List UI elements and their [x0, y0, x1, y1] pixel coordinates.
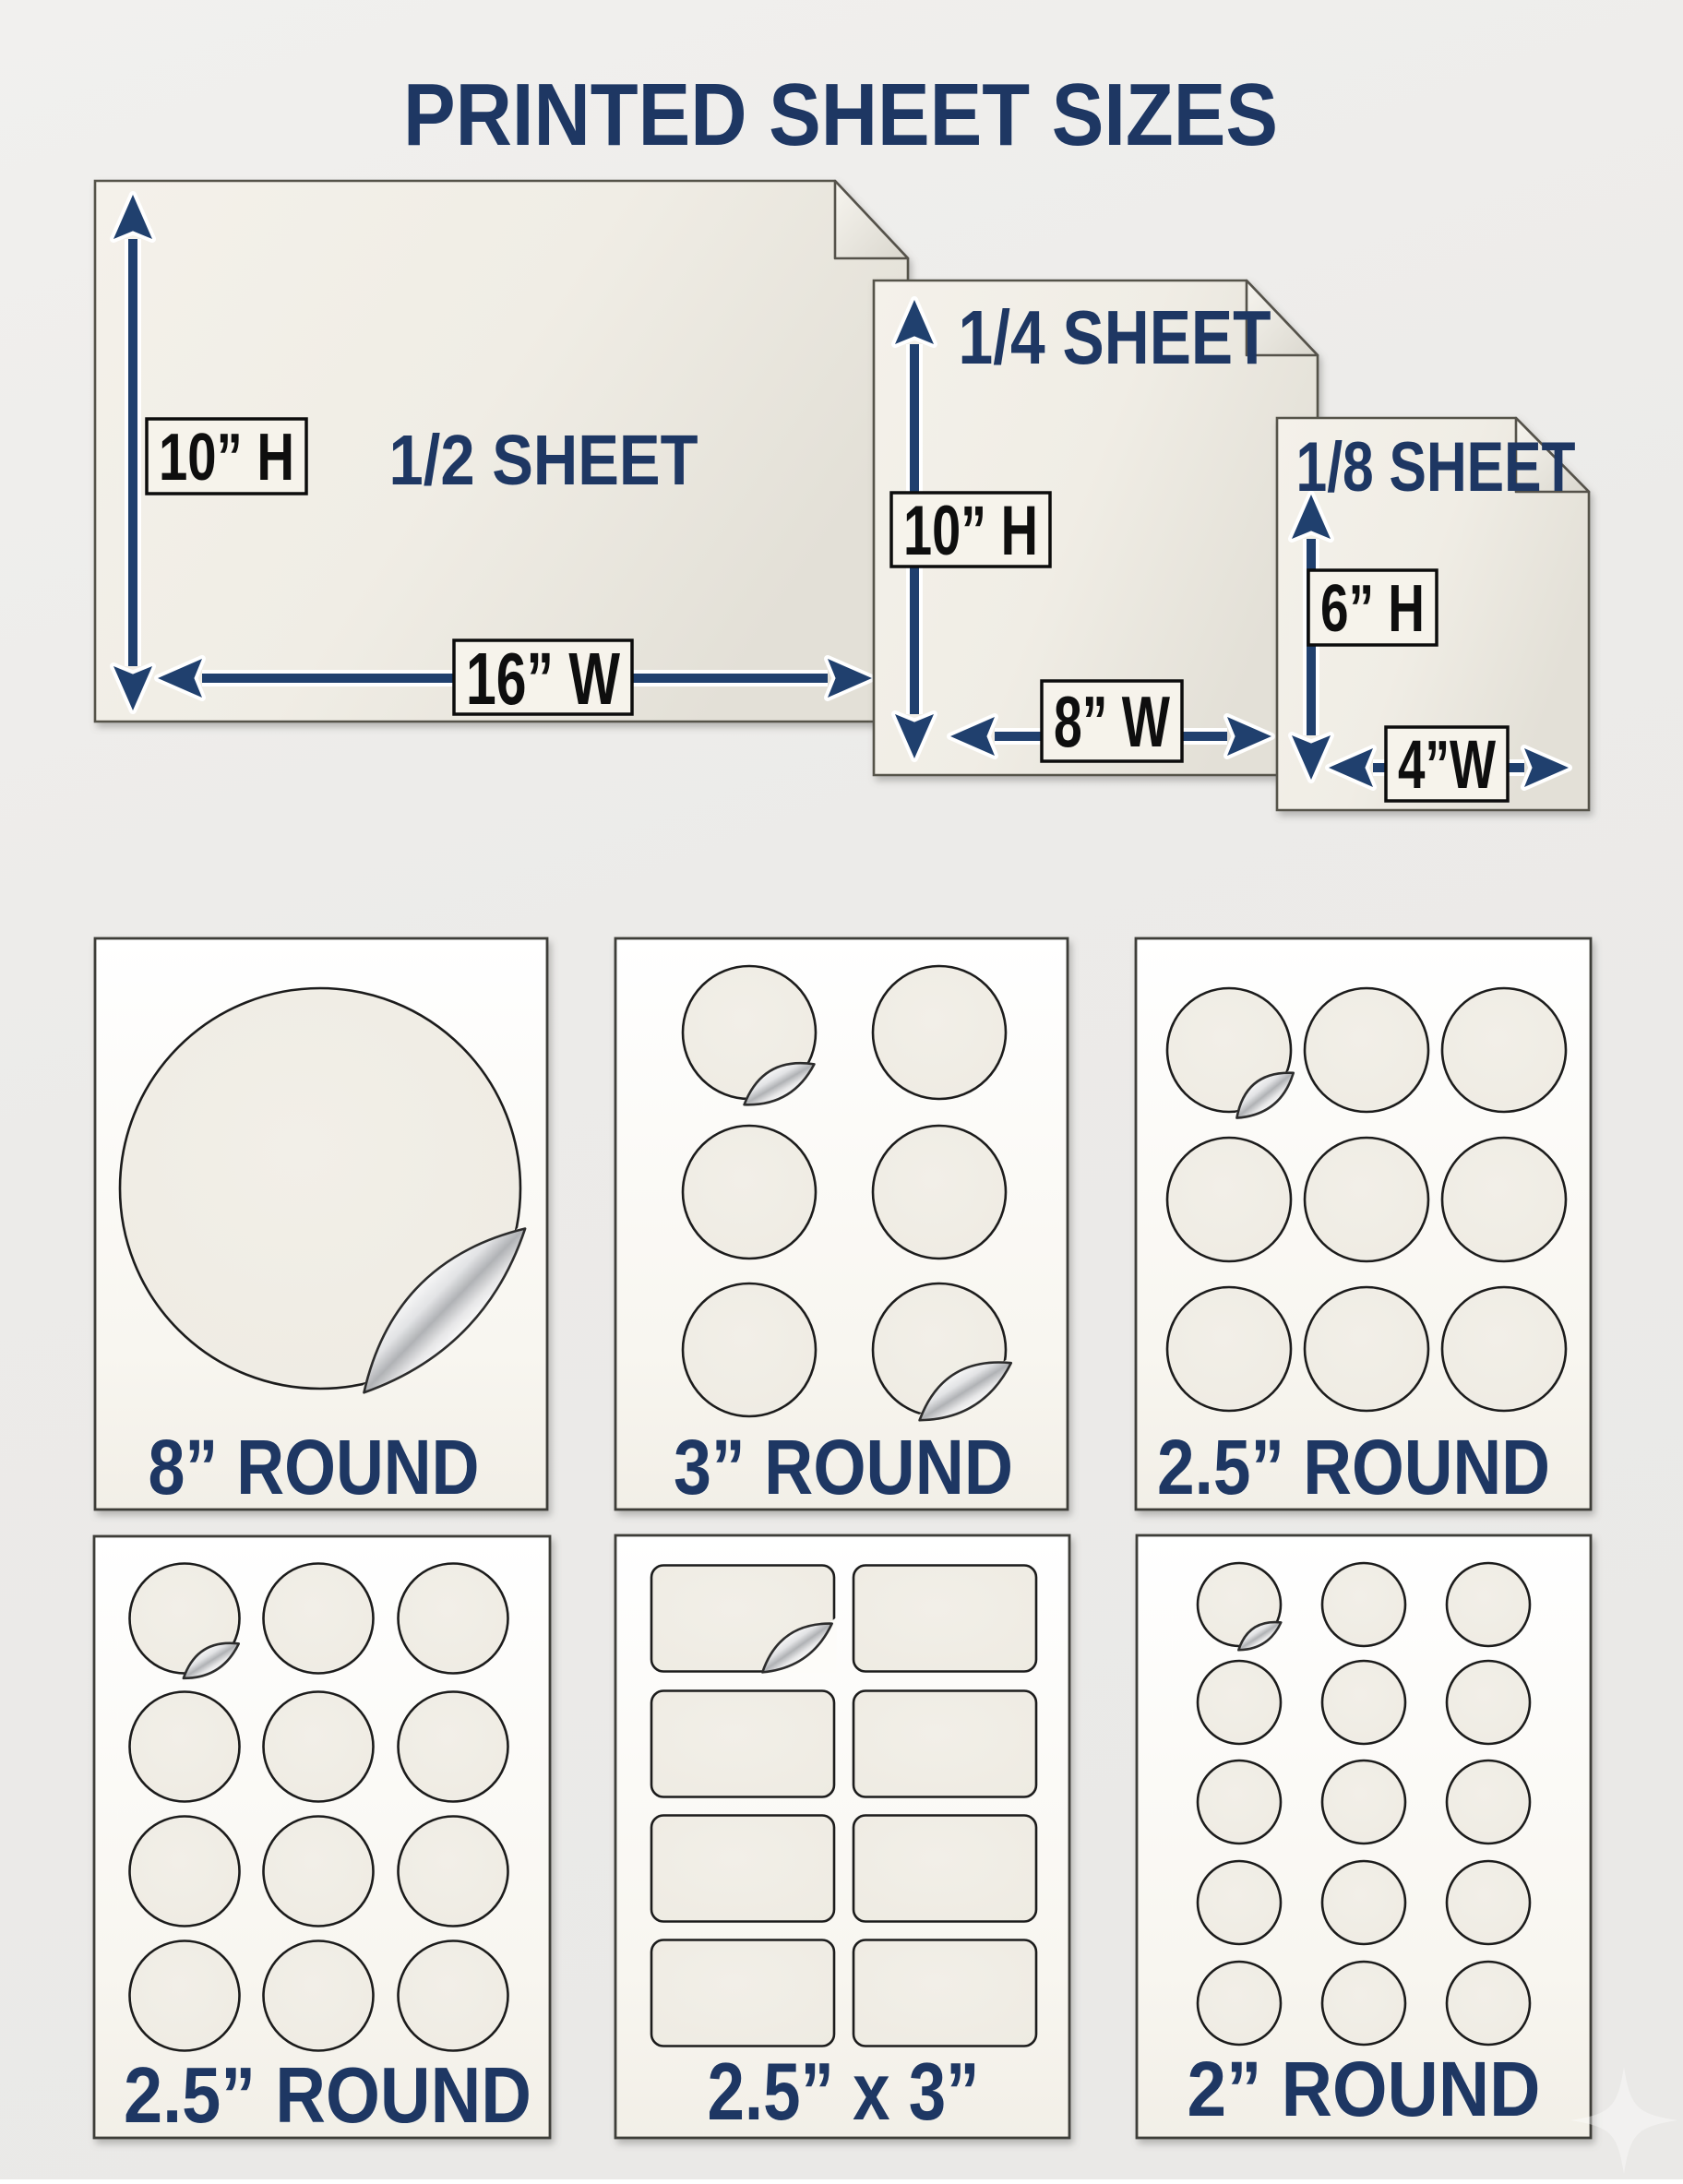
svg-text:PRINTED SHEET SIZES: PRINTED SHEET SIZES — [403, 66, 1278, 164]
svg-text:3” ROUND: 3” ROUND — [674, 1424, 1013, 1510]
svg-text:2.5” x 3”: 2.5” x 3” — [708, 2046, 980, 2137]
svg-text:16” W: 16” W — [466, 638, 620, 720]
svg-text:8” W: 8” W — [1054, 681, 1170, 762]
svg-text:1/4 SHEET: 1/4 SHEET — [959, 294, 1271, 380]
svg-text:8” ROUND: 8” ROUND — [149, 1424, 480, 1510]
svg-text:2” ROUND: 2” ROUND — [1188, 2046, 1541, 2132]
svg-text:10” H: 10” H — [159, 421, 294, 495]
svg-text:4”W: 4”W — [1398, 726, 1496, 803]
svg-text:1/8 SHEET: 1/8 SHEET — [1296, 428, 1576, 507]
svg-text:10” H: 10” H — [903, 492, 1038, 570]
svg-text:2.5” ROUND: 2.5” ROUND — [1157, 1424, 1550, 1510]
svg-text:1/2 SHEET: 1/2 SHEET — [389, 421, 698, 500]
svg-text:6” H: 6” H — [1320, 572, 1425, 646]
svg-text:2.5” ROUND: 2.5” ROUND — [124, 2052, 531, 2140]
